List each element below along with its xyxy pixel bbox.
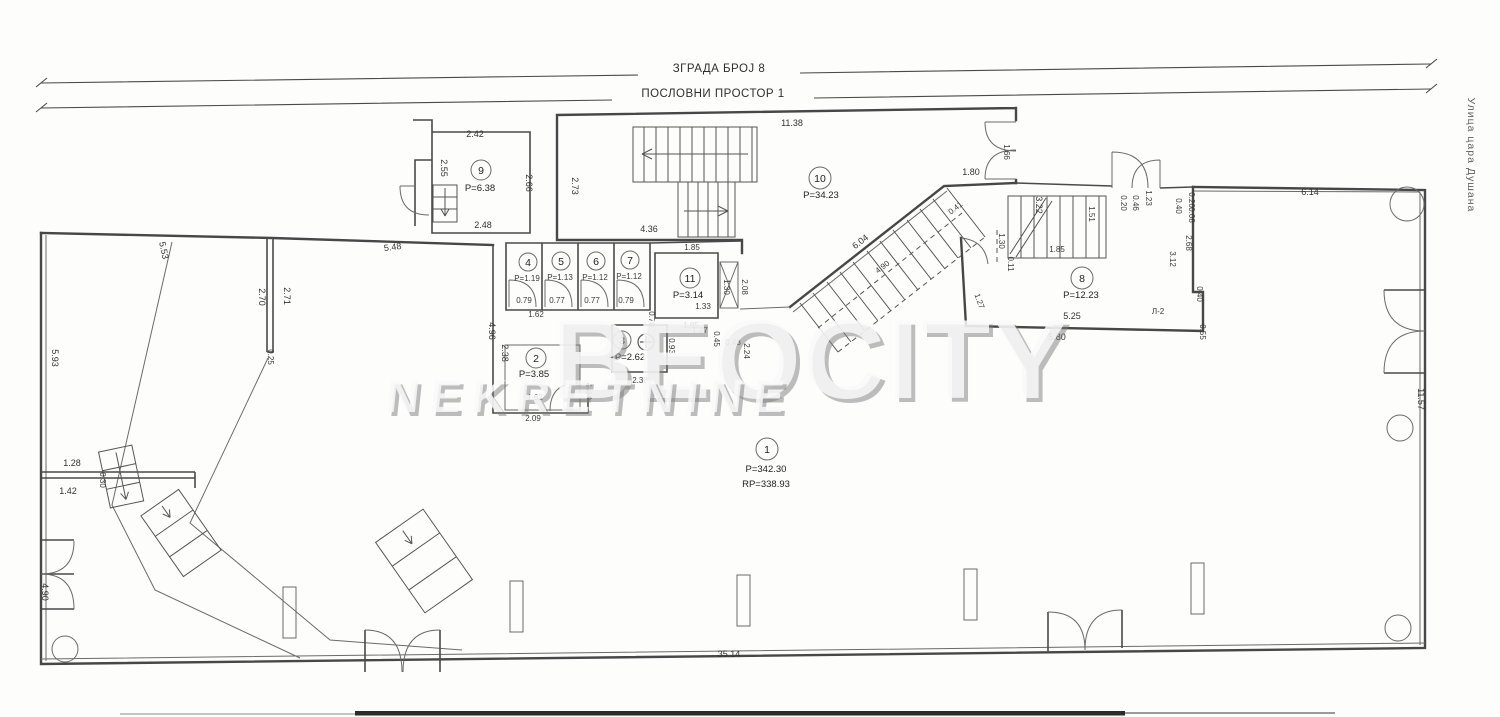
dim-label: 1.80	[962, 167, 980, 177]
svg-text:P=34.23: P=34.23	[803, 190, 839, 201]
dim-label: 6.04	[850, 232, 870, 251]
svg-text:9: 9	[478, 165, 484, 177]
room-label-4: 4 P=1.19	[514, 253, 540, 283]
dim-label: 1.30	[997, 233, 1006, 249]
dim-label: 0.20	[1119, 195, 1128, 211]
dim-label: 1.66	[1002, 144, 1011, 160]
svg-text:6: 6	[593, 256, 599, 268]
dim-label: 1.23	[1144, 190, 1153, 206]
room-label-7: 7 P=1.12	[616, 251, 642, 281]
dim-label: 0.55	[1198, 324, 1207, 340]
header-dimension-lines: ЗГРАДА БРОЈ 8 ПОСЛОВНИ ПРОСТОР 1	[36, 59, 1437, 112]
door-type-label: Л-2	[1152, 307, 1165, 316]
svg-text:P=1.13: P=1.13	[547, 273, 573, 282]
room-label-5: 5 P=1.13	[547, 252, 573, 282]
dim-label: 3.12	[1168, 251, 1177, 267]
svg-text:P=1.12: P=1.12	[582, 273, 608, 282]
dim-label: 0.11	[1006, 257, 1015, 273]
watermark-line2: NEKRETNINE	[384, 370, 798, 422]
dim-label: 0.41	[947, 199, 965, 216]
dim-label: 2.38	[500, 344, 510, 362]
dim-label: 6.14	[1301, 187, 1319, 197]
floor-plan-drawing: ЗГРАДА БРОЈ 8 ПОСЛОВНИ ПРОСТОР 1 Улица ц…	[0, 0, 1500, 717]
dim-label: 5.53	[157, 241, 170, 260]
dim-label: 0.20	[1187, 192, 1196, 208]
dim-label: 2.71	[282, 287, 292, 305]
dim-label: 4.90	[40, 583, 50, 601]
dim-label: 4.96	[487, 322, 497, 340]
room-label-10: 10 P=34.23	[803, 167, 839, 201]
dim-label: 0.79	[516, 296, 532, 305]
svg-text:5: 5	[558, 256, 564, 268]
dim-label: 1.30	[722, 279, 731, 295]
dim-label: 0.46	[1131, 195, 1140, 211]
street-label: Улица цара Душана	[1465, 98, 1477, 213]
dim-label: 4.90	[874, 258, 892, 275]
svg-text:7: 7	[627, 255, 633, 267]
svg-text:4: 4	[525, 257, 531, 269]
room-label-8: 8 P=12.23	[1063, 267, 1099, 301]
dim-label: 3.22	[1034, 196, 1044, 214]
dim-label: 11.57	[1416, 388, 1426, 410]
stairwell-room10	[557, 108, 1016, 253]
dim-label: 0.25	[266, 349, 275, 365]
dim-label: 0.08	[1187, 207, 1196, 223]
floor-plan-page: ЗГРАДА БРОЈ 8 ПОСЛОВНИ ПРОСТОР 1 Улица ц…	[0, 0, 1500, 717]
dim-label: 1.62	[528, 310, 544, 319]
room9-walls	[400, 120, 530, 233]
dim-label: 0.40	[1195, 286, 1204, 302]
dim-label: 4.36	[640, 224, 658, 234]
dim-label: 0.40	[1174, 198, 1183, 214]
dim-label: 11.38	[781, 118, 803, 128]
dim-label: 1.28	[63, 458, 81, 468]
dim-label: 1.85	[1049, 245, 1065, 254]
room-label-9: 9 P=6.38	[465, 160, 495, 194]
dim-label: 5.93	[50, 349, 60, 367]
svg-text:P=1.12: P=1.12	[616, 272, 642, 281]
dim-label: 35.14	[718, 649, 741, 659]
dim-label: 1.42	[59, 486, 77, 496]
svg-text:8: 8	[1079, 273, 1085, 285]
right-wall-door	[1384, 290, 1425, 373]
dim-label: 0.30	[98, 472, 107, 488]
dim-label: 2.08	[740, 279, 749, 295]
watermark: BEOCITY BEOCITY NEKRETNINE NEKRETNINE	[383, 297, 1075, 426]
dim-label: 2.55	[439, 159, 449, 177]
dim-label: 2.70	[257, 288, 267, 306]
dim-label: 2.66	[524, 174, 534, 192]
dim-label: 1.51	[1087, 206, 1096, 222]
room-label-1: 1 P=342.30 RP=338.93	[742, 438, 790, 490]
room-label-6: 6 P=1.12	[582, 252, 608, 282]
dim-label: 5.48	[383, 241, 402, 253]
svg-text:1: 1	[764, 444, 770, 456]
svg-text:RP=338.93: RP=338.93	[742, 479, 790, 490]
dim-label: 2.68	[1184, 235, 1193, 251]
building-label: ЗГРАДА БРОЈ 8	[673, 63, 766, 75]
dim-label: 1.85	[684, 243, 700, 252]
svg-text:10: 10	[814, 173, 826, 185]
svg-text:2: 2	[533, 353, 539, 365]
svg-text:P=6.38: P=6.38	[465, 183, 495, 194]
svg-text:P=342.30: P=342.30	[746, 464, 787, 475]
svg-text:P=1.19: P=1.19	[514, 274, 540, 283]
bottom-entrance-doors	[365, 610, 1122, 672]
dim-label: 2.48	[474, 220, 492, 230]
dim-label: 2.73	[570, 177, 580, 195]
space-label: ПОСЛОВНИ ПРОСТОР 1	[641, 88, 784, 100]
left-diagonal-walls	[41, 242, 472, 658]
dim-label: 2.42	[466, 129, 484, 139]
svg-text:11: 11	[685, 273, 696, 285]
scan-artifact	[120, 711, 1335, 716]
